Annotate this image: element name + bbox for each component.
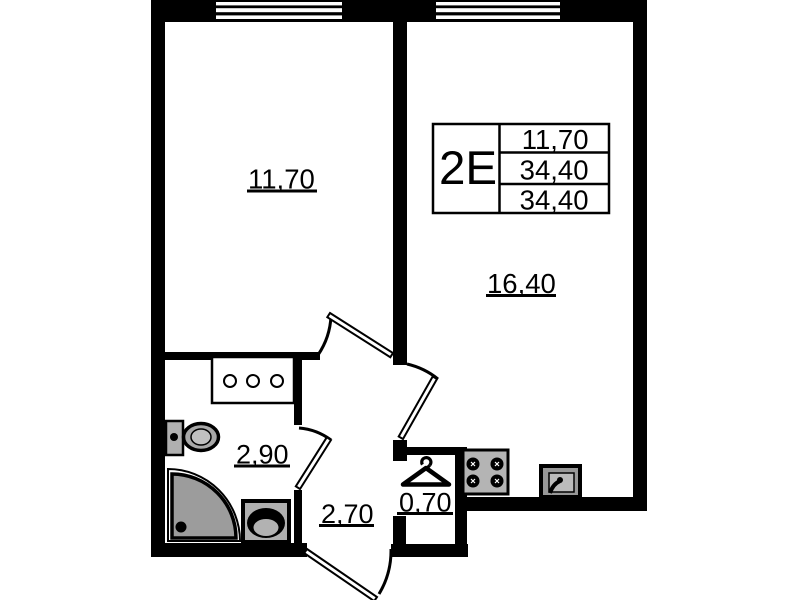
svg-text:34,40: 34,40 — [520, 155, 589, 186]
svg-text:11,70: 11,70 — [522, 124, 589, 155]
svg-text:34,40: 34,40 — [520, 185, 589, 216]
svg-text:2E: 2E — [439, 142, 497, 195]
